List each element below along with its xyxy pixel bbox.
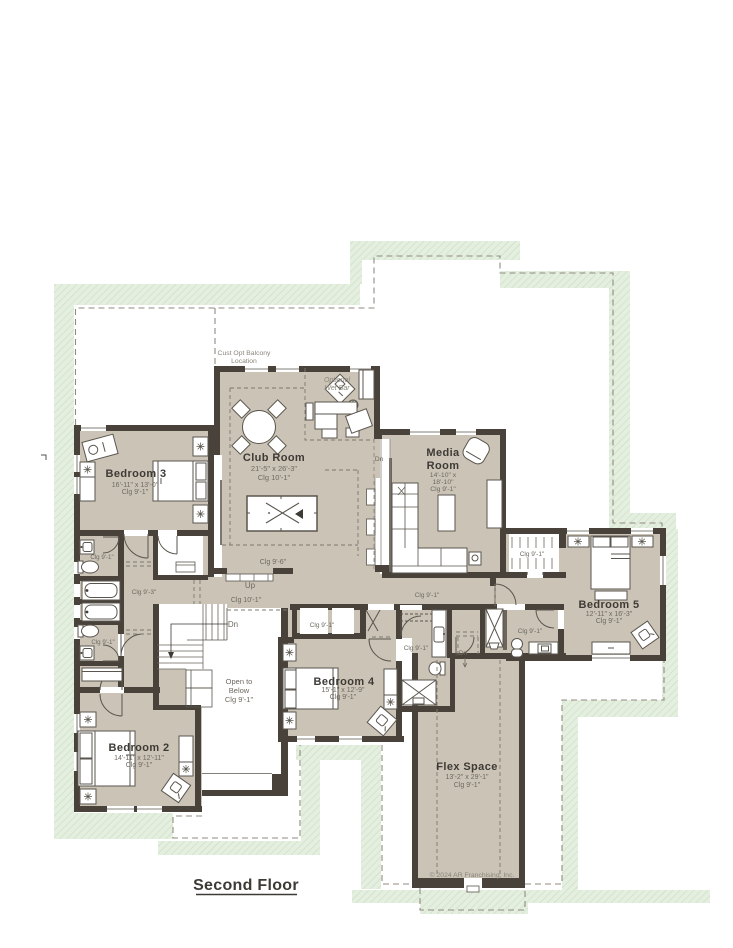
svg-text:Clg 9'-3": Clg 9'-3" (132, 589, 157, 596)
svg-text:Clg 9'-1": Clg 9'-1" (415, 592, 440, 599)
svg-text:Clg 9'-1": Clg 9'-1" (330, 694, 357, 701)
svg-text:Open to: Open to (226, 677, 253, 686)
svg-text:Below: Below (229, 686, 250, 695)
svg-text:14'-10" x: 14'-10" x (430, 472, 457, 479)
svg-text:18'-10": 18'-10" (432, 479, 454, 486)
svg-text:Club Room: Club Room (243, 452, 305, 464)
svg-text:13'-2" x 29'-1": 13'-2" x 29'-1" (445, 774, 489, 781)
svg-text:Flex Space: Flex Space (436, 761, 497, 773)
svg-text:Bedroom 5: Bedroom 5 (578, 599, 639, 611)
svg-text:Clg 9'-6": Clg 9'-6" (260, 559, 287, 566)
svg-text:Clg 9'-1": Clg 9'-1" (454, 782, 481, 789)
svg-text:Clg 9'-1": Clg 9'-1" (225, 695, 254, 704)
svg-text:Optional: Optional (324, 377, 351, 384)
svg-text:Wet Bar: Wet Bar (324, 385, 350, 392)
svg-text:Clg 9'-1": Clg 9'-1" (90, 554, 113, 561)
svg-text:Clg 9'-1": Clg 9'-1" (91, 639, 114, 646)
svg-text:Clg 9'-1": Clg 9'-1" (518, 628, 543, 635)
svg-text:Clg 9'-1": Clg 9'-1" (430, 486, 456, 493)
svg-text:Dn: Dn (228, 620, 238, 629)
svg-text:Room: Room (427, 460, 460, 472)
svg-text:15'-1" x 12'-9": 15'-1" x 12'-9" (321, 687, 365, 694)
svg-text:Media: Media (426, 447, 460, 459)
svg-text:Clg 9'-1": Clg 9'-1" (310, 622, 335, 629)
svg-text:Cust Opt Balcony: Cust Opt Balcony (218, 350, 271, 357)
svg-text:16'-11" x 13'-0": 16'-11" x 13'-0" (112, 482, 159, 489)
svg-text:12'-11" x 16'-3": 12'-11" x 16'-3" (586, 611, 633, 618)
svg-text:Clg 9'-1": Clg 9'-1" (126, 762, 153, 769)
svg-text:Clg 9'-1": Clg 9'-1" (520, 551, 545, 558)
svg-text:14'-11" x 12'-11": 14'-11" x 12'-11" (114, 755, 164, 762)
svg-text:Dn: Dn (375, 456, 384, 463)
svg-text:Dn: Dn (459, 650, 468, 657)
svg-text:21'-5" x 26'-3": 21'-5" x 26'-3" (251, 464, 297, 473)
svg-text:Second Floor: Second Floor (193, 877, 299, 894)
svg-text:Clg 10'-1": Clg 10'-1" (258, 473, 291, 482)
svg-text:Clg 9'-1": Clg 9'-1" (596, 618, 623, 625)
svg-text:Clg 9'-1": Clg 9'-1" (404, 645, 429, 652)
svg-text:Bedroom 2: Bedroom 2 (108, 742, 169, 754)
svg-text:Bedroom 3: Bedroom 3 (105, 468, 166, 480)
svg-text:© 2024 AR Franchising, Inc.: © 2024 AR Franchising, Inc. (430, 871, 515, 879)
svg-text:Up: Up (245, 581, 256, 590)
svg-text:Clg 9'-1": Clg 9'-1" (122, 489, 149, 496)
svg-text:Location: Location (231, 358, 257, 365)
svg-text:Clg 10'-1": Clg 10'-1" (231, 597, 262, 604)
